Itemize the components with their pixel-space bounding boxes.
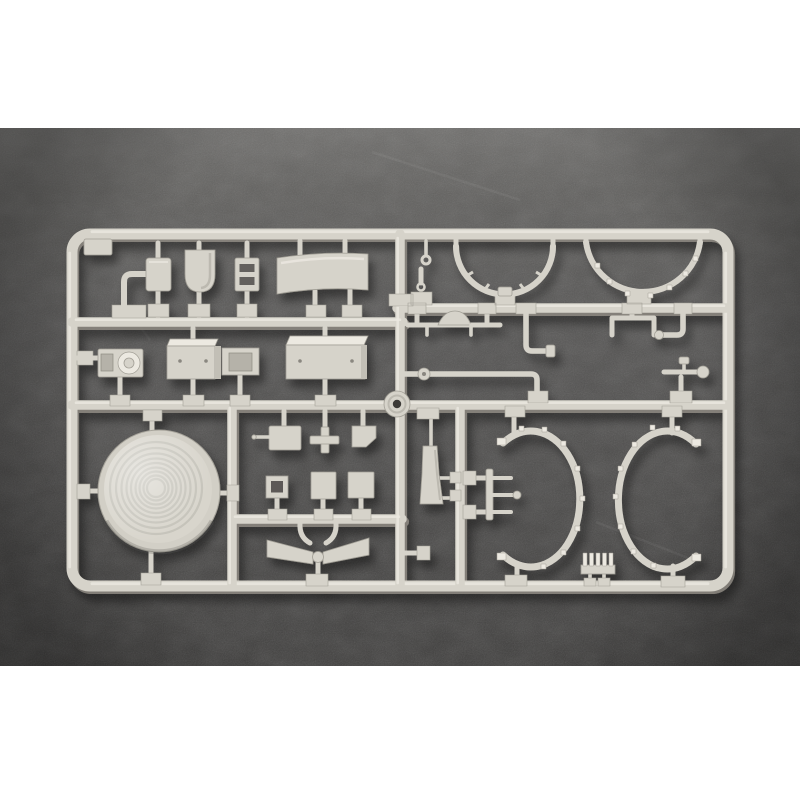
boxpin-pin-head [252, 435, 256, 439]
photo-canvas: Injection-molded model kit sprue (light … [0, 0, 800, 800]
part-corner-tab [84, 239, 112, 255]
ladder-slot-2 [240, 277, 255, 285]
box2-door [229, 353, 252, 371]
lever-tip [679, 357, 689, 364]
sprue-photo: Injection-molded model kit sprue (light … [0, 0, 800, 800]
part-equipment-box-1 [167, 339, 221, 379]
lever-ball-end [697, 366, 709, 378]
cross-horizontal [310, 436, 339, 444]
part-equipment-box-2 [222, 348, 259, 375]
part-ladder-bracket [235, 258, 259, 291]
grommet-hole [393, 400, 401, 408]
bowtie-hub [313, 552, 324, 563]
grate-base [581, 565, 615, 574]
part-equipment-box-3 [286, 336, 368, 379]
part-small-box [146, 258, 171, 291]
box1-side-face [215, 346, 221, 379]
disc-sheen [104, 435, 212, 543]
part-hatch-square-large [348, 472, 374, 498]
ladder-plate [235, 258, 259, 291]
winch-drum-hub [124, 358, 134, 368]
box3-top-face [286, 336, 368, 345]
box1-rivet-2 [204, 359, 208, 363]
winch-recess [101, 354, 113, 371]
part-frame-square-open [266, 476, 288, 498]
ladder-slot-1 [240, 264, 255, 272]
box1-rivet-1 [178, 359, 182, 363]
arc-left-center-tab [498, 287, 512, 296]
part-curved-panel [277, 253, 368, 294]
box3-rivet-2 [350, 359, 354, 363]
elbow-pipe-ball-end [655, 331, 664, 340]
z-pipe-cap [546, 345, 555, 357]
boxpin-body [269, 426, 301, 450]
part-grommet-ring [384, 391, 410, 417]
box1-front-face [167, 346, 215, 379]
part-hatch-square-small [311, 472, 336, 499]
box3-side-face [361, 345, 367, 379]
box1-top-face [167, 339, 218, 346]
part-fuel-tank [185, 250, 215, 292]
trident-ball-tip [513, 491, 521, 499]
part-ribbed-dome-disc [98, 430, 220, 552]
box3-rivet-1 [298, 359, 302, 363]
open-square-hole [271, 481, 283, 493]
part-comb-grate [581, 553, 615, 574]
long-pipe-collar-hole [422, 372, 426, 376]
